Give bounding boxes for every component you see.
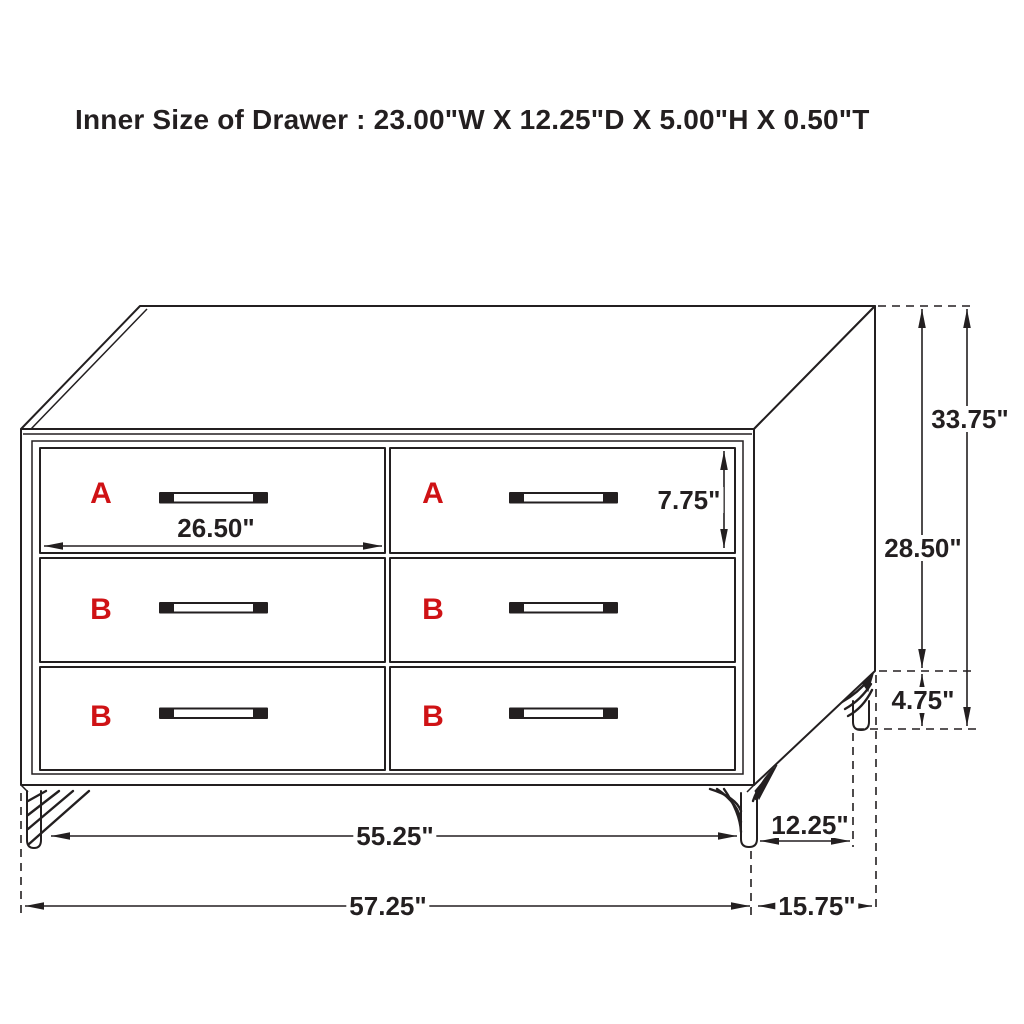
dresser-line-art [0, 0, 1024, 1024]
dresser-dimension-diagram: Inner Size of Drawer : 23.00"W X 12.25"D… [0, 0, 1024, 1024]
dim-overall-depth: 15.75" [775, 893, 858, 919]
dim-overall-height: 33.75" [928, 406, 1011, 432]
dim-body-height: 28.50" [881, 535, 964, 561]
dim-drawer-face-width: 26.50" [174, 515, 257, 541]
dresser-body [21, 306, 875, 792]
dim-overall-width: 57.25" [346, 893, 429, 919]
dim-legspan-width: 55.25" [353, 823, 436, 849]
dim-drawer-face-height: 7.75" [655, 487, 724, 513]
drawer-label: A [90, 479, 112, 509]
drawer-label: B [422, 595, 444, 625]
dim-legspan-depth: 12.25" [768, 812, 851, 838]
dim-leg-height: 4.75" [889, 687, 958, 713]
dresser-top [21, 306, 875, 429]
drawer-label: A [422, 479, 444, 509]
diagram-title: Inner Size of Drawer : 23.00"W X 12.25"D… [75, 104, 870, 136]
drawer-label: B [422, 702, 444, 732]
drawer-label: B [90, 595, 112, 625]
drawer-label: B [90, 702, 112, 732]
leg-front-left [27, 791, 89, 848]
